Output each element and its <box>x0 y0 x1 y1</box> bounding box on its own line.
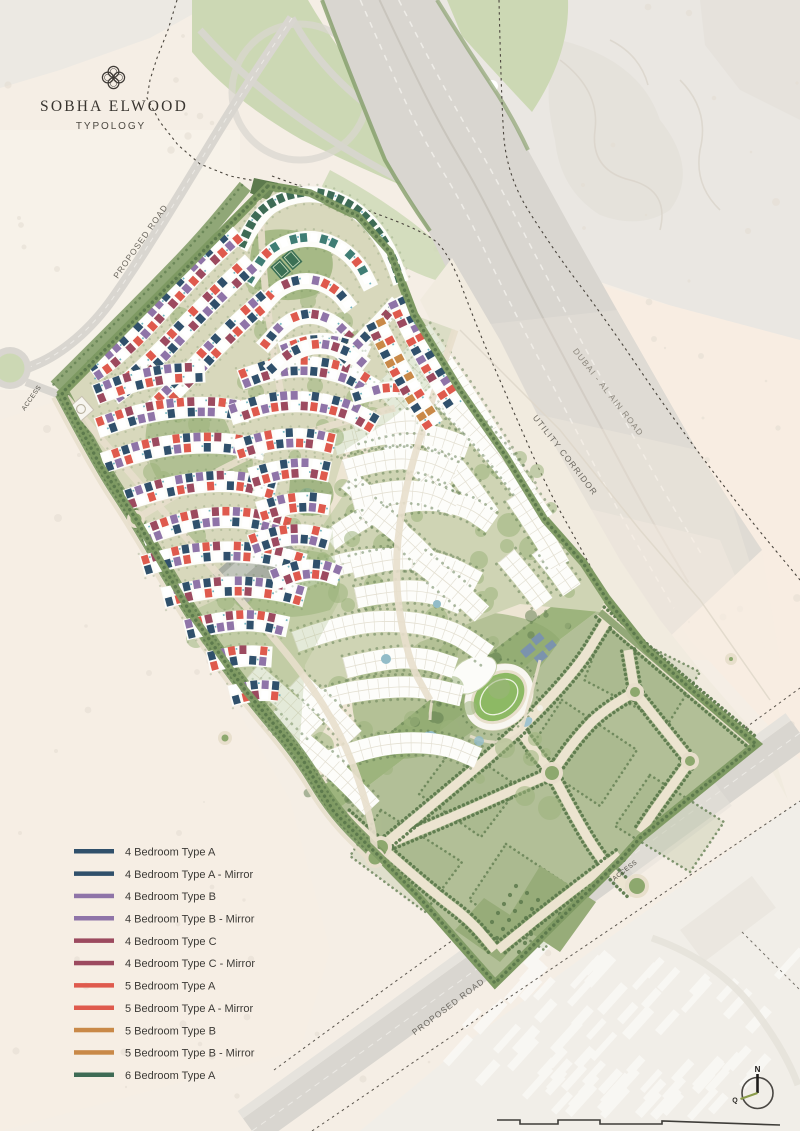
svg-text:6 Bedroom Type A: 6 Bedroom Type A <box>125 1070 216 1082</box>
svg-text:5 Bedroom Type A: 5 Bedroom Type A <box>125 981 216 993</box>
svg-text:4 Bedroom Type A: 4 Bedroom Type A <box>125 847 216 859</box>
svg-text:Q: Q <box>732 1098 738 1105</box>
svg-text:SOBHA ELWOOD: SOBHA ELWOOD <box>40 98 188 115</box>
svg-text:4 Bedroom Type B: 4 Bedroom Type B <box>125 891 216 903</box>
svg-text:5 Bedroom Type A - Mirror: 5 Bedroom Type A - Mirror <box>125 1003 254 1015</box>
svg-text:TYPOLOGY: TYPOLOGY <box>76 121 146 132</box>
svg-text:5 Bedroom Type B: 5 Bedroom Type B <box>125 1025 216 1037</box>
svg-text:N: N <box>755 1065 761 1074</box>
svg-text:5 Bedroom Type B - Mirror: 5 Bedroom Type B - Mirror <box>125 1048 255 1060</box>
svg-text:4 Bedroom Type A - Mirror: 4 Bedroom Type A - Mirror <box>125 869 254 881</box>
svg-text:4 Bedroom Type C: 4 Bedroom Type C <box>125 936 217 948</box>
svg-text:4 Bedroom Type B - Mirror: 4 Bedroom Type B - Mirror <box>125 914 255 926</box>
svg-text:4 Bedroom Type C - Mirror: 4 Bedroom Type C - Mirror <box>125 958 255 970</box>
